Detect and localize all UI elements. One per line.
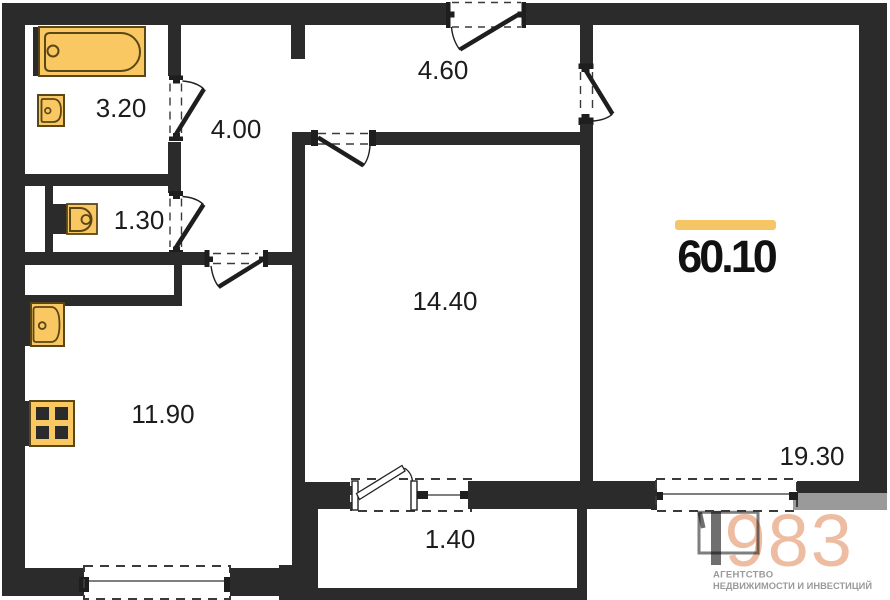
svg-text:4.00: 4.00 [211, 114, 262, 144]
svg-text:1.30: 1.30 [114, 205, 165, 235]
svg-text:НЕДВИЖИМОСТИ И ИНВЕСТИЦИЙ: НЕДВИЖИМОСТИ И ИНВЕСТИЦИЙ [713, 580, 872, 591]
svg-text:1.40: 1.40 [425, 524, 476, 554]
svg-text:11.90: 11.90 [131, 399, 194, 429]
svg-text:АГЕНТСТВО: АГЕНТСТВО [713, 570, 773, 581]
svg-text:60.10: 60.10 [677, 231, 777, 282]
svg-text:4.60: 4.60 [418, 55, 469, 85]
svg-text:19.30: 19.30 [779, 441, 844, 471]
svg-text:3.20: 3.20 [96, 93, 147, 123]
svg-text:14.40: 14.40 [412, 286, 477, 316]
